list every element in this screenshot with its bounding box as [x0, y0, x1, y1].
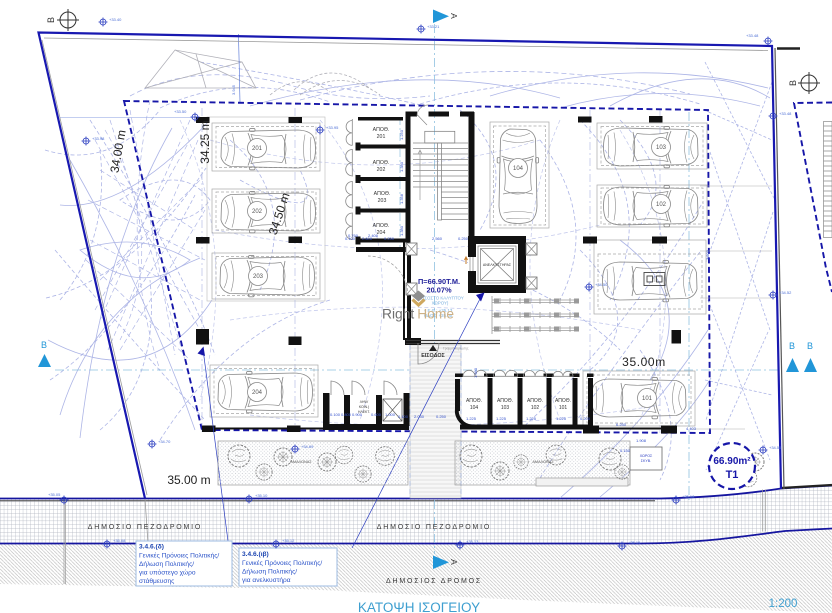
svg-text:203: 203 [253, 274, 264, 280]
svg-text:1.225: 1.225 [466, 416, 477, 421]
svg-text:204: 204 [252, 390, 263, 396]
svg-text:ΑΠΟΘ.: ΑΠΟΘ. [527, 398, 543, 404]
svg-text:+34.70: +34.70 [158, 439, 171, 444]
svg-text:20.07%: 20.07% [426, 286, 451, 295]
svg-text:ΔΗΜΟΣΙΟΣ ΔΡΟΜΟΣ: ΔΗΜΟΣΙΟΣ ΔΡΟΜΟΣ [386, 578, 482, 585]
svg-text:Δήλωση Πολιτικής/: Δήλωση Πολιτικής/ [139, 561, 194, 568]
svg-text:2.030: 2.030 [414, 414, 425, 419]
svg-text:RightHome: RightHome [382, 307, 454, 322]
svg-text:3.945: 3.945 [231, 84, 236, 95]
svg-text:202: 202 [252, 209, 263, 215]
svg-text:Γραμμή κυρίωσης: Γραμμή κυρίωσης [443, 347, 469, 351]
svg-text:+34.50: +34.50 [595, 282, 608, 287]
svg-text:1.358: 1.358 [399, 193, 404, 204]
svg-text:66.90m²: 66.90m² [713, 456, 751, 467]
svg-text:Γενικές Πρόνοιες Πολιτικής/: Γενικές Πρόνοιες Πολιτικής/ [139, 552, 219, 560]
svg-text:ΧΩΡΟΣ: ΧΩΡΟΣ [640, 454, 653, 458]
svg-text:ΑΠΟΘ.: ΑΠΟΘ. [373, 127, 390, 133]
svg-text:+35.18: +35.18 [682, 494, 695, 499]
svg-text:1.908: 1.908 [636, 438, 647, 443]
svg-text:0.200: 0.200 [580, 416, 591, 421]
svg-text:ΔΗΜΟΣΙΟ ΠΕΖΟΔΡΟΜΙΟ: ΔΗΜΟΣΙΟ ΠΕΖΟΔΡΟΜΙΟ [377, 524, 491, 531]
svg-text:ΑΠΟΘ.: ΑΠΟΘ. [373, 223, 390, 229]
svg-text:102: 102 [531, 405, 540, 411]
svg-text:ΑΜΑΛΩΝΑΣ: ΑΜΑΛΩΝΑΣ [532, 460, 554, 464]
svg-text:103: 103 [501, 405, 510, 411]
svg-text:+35.05: +35.05 [48, 492, 61, 497]
svg-text:102: 102 [656, 202, 667, 208]
svg-text:A: A [449, 559, 459, 565]
svg-text:1.000: 1.000 [385, 412, 396, 417]
svg-text:1.250: 1.250 [399, 129, 404, 140]
svg-text:B: B [46, 17, 56, 23]
svg-text:3.500: 3.500 [705, 249, 710, 260]
svg-text:A: A [449, 13, 459, 19]
svg-text:0.150: 0.150 [620, 448, 631, 453]
svg-text:ΑΠΟΘ.: ΑΠΟΘ. [373, 160, 390, 166]
svg-text:2.400: 2.400 [368, 233, 379, 238]
svg-text:B: B [807, 341, 813, 351]
svg-text:+34.52: +34.52 [779, 290, 792, 295]
svg-text:B: B [788, 80, 798, 86]
svg-text:ΑΠΟΘ.: ΑΠΟΘ. [374, 191, 391, 197]
svg-text:+33.50: +33.50 [174, 109, 187, 114]
svg-text:+35.12: +35.12 [282, 538, 295, 543]
svg-text:+35.10: +35.10 [255, 493, 268, 498]
svg-text:1.225: 1.225 [556, 416, 567, 421]
svg-text:0.250: 0.250 [458, 236, 469, 241]
svg-text:1.980: 1.980 [473, 367, 478, 378]
svg-text:B: B [41, 340, 47, 350]
svg-text:ΚΑΤΟΨΗ ΙΣΟΓΕΙΟΥ: ΚΑΤΟΨΗ ΙΣΟΓΕΙΟΥ [358, 600, 480, 613]
svg-text:0.100: 0.100 [330, 412, 341, 417]
svg-text:+33.21: +33.21 [427, 24, 440, 29]
svg-text:35.00m: 35.00m [622, 355, 666, 369]
svg-text:+33.40: +33.40 [109, 17, 122, 22]
svg-text:1.380: 1.380 [399, 225, 404, 236]
svg-text:Γενικές Πρόνοιες Πολιτικής/: Γενικές Πρόνοιες Πολιτικής/ [242, 559, 322, 567]
svg-text:0.100: 0.100 [398, 414, 409, 419]
svg-text:B: B [789, 341, 795, 351]
svg-text:ΣΚΥΒ.: ΣΚΥΒ. [641, 459, 651, 463]
svg-text:104: 104 [470, 405, 479, 411]
svg-text:+34.55: +34.55 [769, 445, 782, 450]
svg-text:4.403: 4.403 [686, 426, 697, 431]
svg-text:ΚΟΙΝ.): ΚΟΙΝ.) [359, 405, 369, 409]
svg-text:201: 201 [377, 134, 386, 140]
svg-text:202: 202 [377, 167, 386, 173]
svg-text:101: 101 [559, 405, 568, 411]
svg-text:ΔΗΜΟΣΙΟ ΠΕΖΟΔΡΟΜΙΟ: ΔΗΜΟΣΙΟ ΠΕΖΟΔΡΟΜΙΟ [88, 524, 202, 531]
svg-text:για υπόστεγο χώρο: για υπόστεγο χώρο [139, 569, 196, 577]
svg-text:201: 201 [252, 146, 263, 152]
svg-text:0.900: 0.900 [352, 412, 363, 417]
svg-text:+34.69: +34.69 [301, 444, 314, 449]
svg-text:ΕΙΣΟΔΟΣ: ΕΙΣΟΔΟΣ [421, 353, 445, 359]
svg-text:1:200: 1:200 [769, 598, 798, 610]
svg-text:3.4.6.(ιβ): 3.4.6.(ιβ) [242, 551, 269, 558]
svg-text:0.600: 0.600 [371, 412, 382, 417]
svg-text:203: 203 [378, 198, 387, 204]
svg-text:για ανελκυστήρα: για ανελκυστήρα [242, 577, 291, 584]
svg-text:1.225: 1.225 [496, 416, 507, 421]
svg-text:ΑΠΟΘ.: ΑΠΟΘ. [555, 398, 571, 404]
svg-text:1.380: 1.380 [399, 161, 404, 172]
svg-text:103: 103 [656, 145, 667, 151]
svg-text:34.25 m: 34.25 m [198, 120, 212, 163]
svg-text:0.250: 0.250 [436, 414, 447, 419]
svg-text:2.560: 2.560 [432, 236, 443, 241]
svg-text:στάθμευσης: στάθμευσης [139, 577, 174, 585]
svg-text:104: 104 [513, 166, 524, 172]
svg-text:ΧΩΡΟΥ): ΧΩΡΟΥ) [432, 301, 449, 306]
svg-text:0.250: 0.250 [384, 236, 395, 241]
svg-text:Δήλωση Πολιτικής/: Δήλωση Πολιτικής/ [242, 569, 297, 576]
svg-text:+33.95: +33.95 [326, 125, 339, 130]
svg-text:+35.08: +35.08 [113, 538, 126, 543]
svg-text:T1: T1 [726, 469, 739, 481]
svg-text:ΛΗΨ/: ΛΗΨ/ [360, 400, 369, 404]
svg-text:3.4.6.(δ): 3.4.6.(δ) [139, 544, 164, 551]
svg-text:ΑΠΟΘ.: ΑΠΟΘ. [497, 398, 513, 404]
svg-text:1.225: 1.225 [526, 416, 537, 421]
svg-text:ΑΜΑΛΩΝΑΣ: ΑΜΑΛΩΝΑΣ [290, 460, 312, 464]
svg-text:101: 101 [642, 396, 653, 402]
svg-text:ΑΝΕΛΚΥΣΤΗΡΑΣ: ΑΝΕΛΚΥΣΤΗΡΑΣ [483, 263, 512, 267]
svg-text:+33.48: +33.48 [779, 111, 792, 116]
svg-text:+35.15: +35.15 [628, 540, 641, 545]
svg-text:+33.98: +33.98 [92, 136, 105, 141]
svg-text:+35.13: +35.13 [466, 539, 479, 544]
svg-text:+33.48: +33.48 [746, 33, 759, 38]
svg-text:0.760: 0.760 [348, 233, 359, 238]
svg-text:35.00 m: 35.00 m [167, 473, 210, 487]
svg-text:0.800: 0.800 [341, 412, 352, 417]
svg-text:6.250: 6.250 [616, 422, 627, 427]
svg-text:ΑΠΟΘ.: ΑΠΟΘ. [466, 398, 482, 404]
